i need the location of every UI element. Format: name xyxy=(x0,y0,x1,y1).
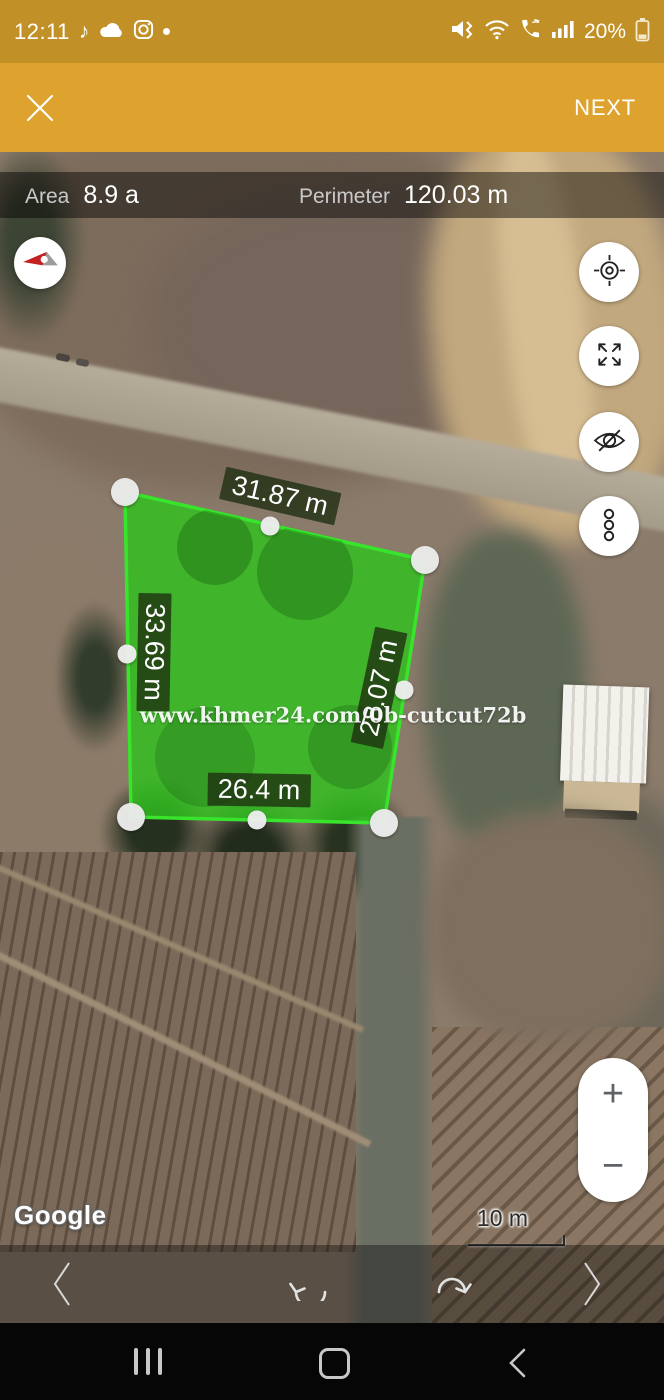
tiktok-icon: ♪ xyxy=(79,21,90,42)
clock: 12:11 xyxy=(14,19,70,45)
scale-bar: 10 m xyxy=(440,1205,565,1246)
zoom-control: + − xyxy=(578,1058,648,1202)
fullscreen-icon xyxy=(594,339,625,373)
redo-icon xyxy=(432,1287,474,1302)
chevron-right-icon xyxy=(582,1295,602,1310)
app-header: NEXT xyxy=(0,63,664,152)
perimeter-label: Perimeter xyxy=(299,185,390,209)
vertex-bottom-left xyxy=(117,803,145,831)
chevron-left-icon xyxy=(52,1295,72,1310)
watermark: www.khmer24.com/0b-cutcut72b xyxy=(140,703,527,728)
midpoint-top xyxy=(261,517,280,536)
hide-labels-button[interactable] xyxy=(579,412,639,472)
fullscreen-button[interactable] xyxy=(579,326,639,386)
mute-vibrate-icon xyxy=(451,18,475,45)
home-icon xyxy=(319,1348,350,1379)
cloud-icon xyxy=(98,20,124,43)
perimeter-value: 120.03 m xyxy=(404,181,508,210)
next-vertex-button[interactable] xyxy=(582,1261,602,1307)
more-options-button[interactable] xyxy=(579,496,639,556)
battery-percent: 20% xyxy=(584,20,626,44)
midpoint-bottom xyxy=(248,811,267,830)
close-icon xyxy=(22,114,58,129)
android-navigation-bar xyxy=(0,1323,664,1400)
battery-icon xyxy=(635,17,650,47)
recents-icon xyxy=(134,1348,162,1375)
edge-label-left: 33.69 m xyxy=(136,593,171,711)
vertex-bottom-right xyxy=(370,809,398,837)
area-label: Area xyxy=(25,185,69,209)
undo-button[interactable] xyxy=(286,1265,332,1301)
zoom-out-button[interactable]: − xyxy=(578,1130,648,1202)
close-button[interactable] xyxy=(22,90,58,126)
area-value: 8.9 a xyxy=(83,181,139,210)
home-button[interactable] xyxy=(319,1348,350,1379)
my-location-button[interactable] xyxy=(579,242,639,302)
google-logo: Google xyxy=(14,1200,107,1231)
more-options-icon xyxy=(598,508,620,545)
measure-bar: Area 8.9 a Perimeter 120.03 m xyxy=(0,172,664,218)
polygon-layer xyxy=(0,152,664,1323)
compass-needle-icon xyxy=(18,240,62,287)
compass-button[interactable] xyxy=(14,237,66,289)
vertex-top-left xyxy=(111,478,139,506)
edge-label-bottom: 26.4 m xyxy=(207,773,310,808)
status-bar: 12:11 ♪ 20% xyxy=(0,0,664,63)
next-button[interactable]: NEXT xyxy=(568,94,642,122)
back-icon xyxy=(508,1366,527,1381)
prev-vertex-button[interactable] xyxy=(52,1261,72,1307)
zoom-in-button[interactable]: + xyxy=(578,1058,648,1130)
eye-off-icon xyxy=(592,426,627,458)
back-button[interactable] xyxy=(508,1348,527,1378)
signal-icon xyxy=(551,19,575,44)
redo-button[interactable] xyxy=(432,1269,474,1299)
wifi-calling-icon xyxy=(519,18,542,45)
edit-toolbar xyxy=(0,1245,664,1323)
midpoint-left xyxy=(118,645,137,664)
instagram-icon xyxy=(133,19,154,45)
map-canvas[interactable]: 31.87 m 33.69 m 28.07 m 26.4 m www.khmer… xyxy=(0,152,664,1323)
midpoint-right xyxy=(395,681,414,700)
wifi-icon xyxy=(484,19,510,45)
recents-button[interactable] xyxy=(134,1348,162,1375)
notification-dot xyxy=(163,28,170,35)
scale-label: 10 m xyxy=(440,1205,565,1232)
vertex-top-right xyxy=(411,546,439,574)
my-location-icon xyxy=(593,254,626,290)
undo-icon xyxy=(286,1289,332,1304)
